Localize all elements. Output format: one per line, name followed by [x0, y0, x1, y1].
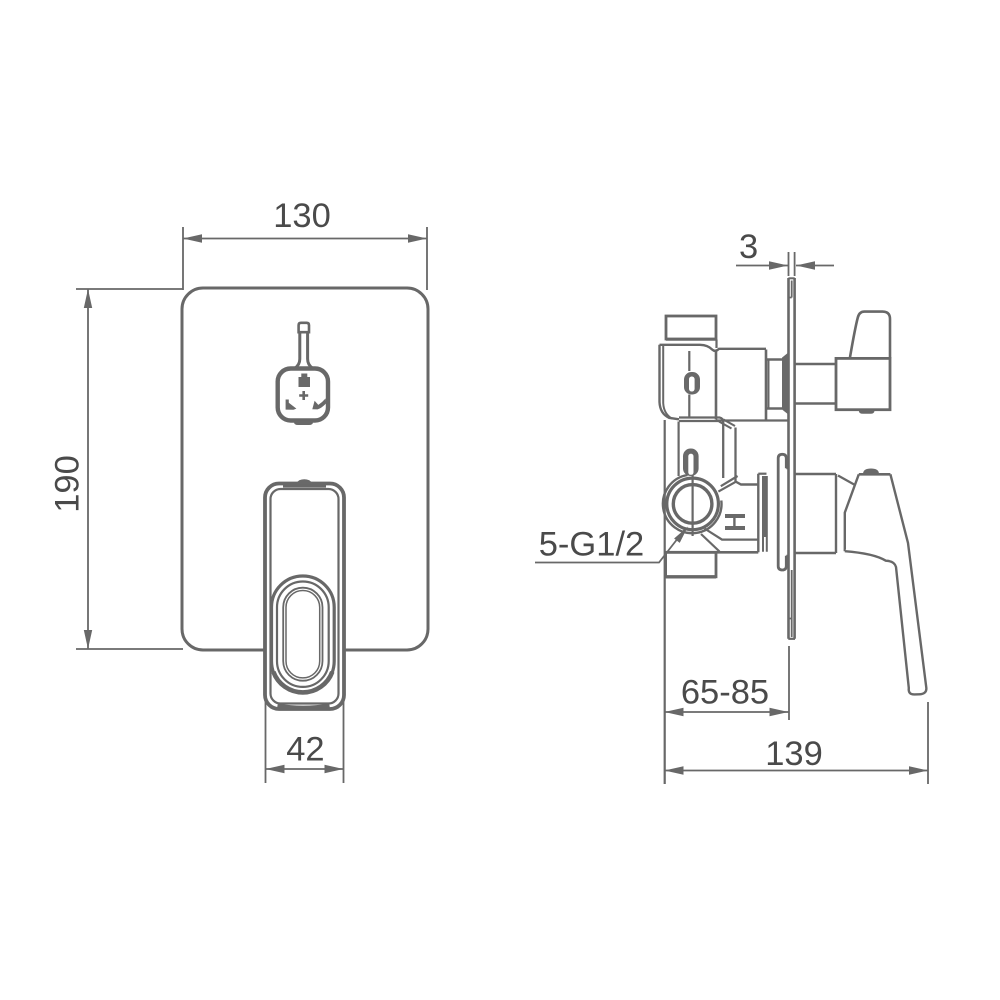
- svg-text:3: 3: [739, 228, 758, 266]
- svg-text:5-G1/2: 5-G1/2: [539, 526, 644, 564]
- svg-text:130: 130: [273, 197, 331, 235]
- svg-text:65-85: 65-85: [681, 674, 769, 712]
- svg-text:42: 42: [286, 731, 324, 769]
- svg-text:190: 190: [49, 455, 87, 513]
- svg-text:139: 139: [765, 735, 823, 773]
